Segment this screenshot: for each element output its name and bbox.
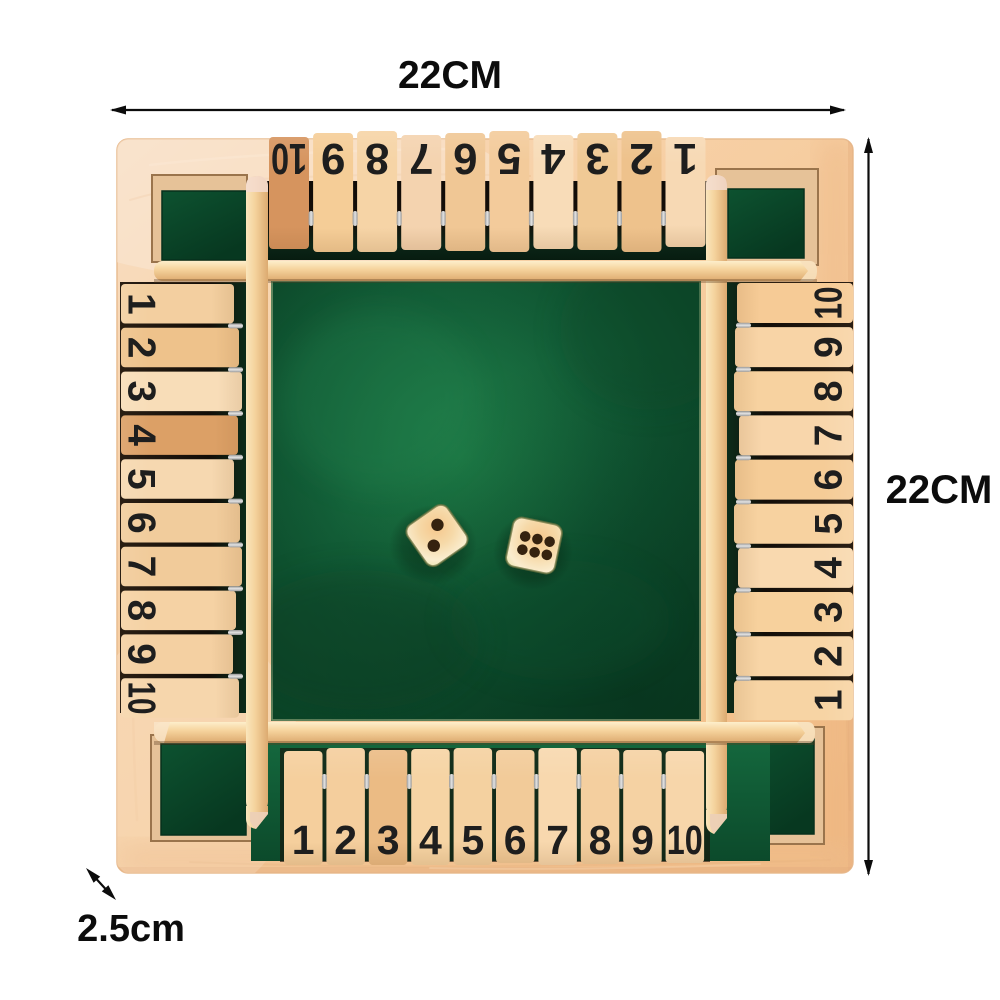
svg-text:9: 9	[631, 817, 654, 863]
svg-text:6: 6	[453, 134, 477, 183]
svg-text:5: 5	[120, 468, 163, 490]
svg-text:2.5cm: 2.5cm	[77, 908, 185, 950]
svg-text:7: 7	[546, 817, 569, 863]
svg-text:8: 8	[365, 134, 389, 183]
svg-text:6: 6	[808, 469, 851, 491]
svg-text:9: 9	[808, 336, 851, 358]
svg-text:5: 5	[807, 513, 850, 535]
svg-text:3: 3	[585, 134, 609, 183]
svg-text:1: 1	[292, 817, 315, 863]
svg-text:2: 2	[120, 337, 163, 359]
svg-text:4: 4	[419, 817, 442, 863]
svg-text:10: 10	[271, 134, 307, 183]
svg-text:3: 3	[377, 817, 400, 863]
svg-text:4: 4	[541, 134, 566, 183]
svg-text:10: 10	[667, 817, 703, 863]
svg-text:3: 3	[808, 601, 851, 623]
svg-text:4: 4	[808, 557, 851, 579]
svg-text:1: 1	[673, 134, 697, 183]
svg-text:6: 6	[120, 512, 163, 534]
svg-text:8: 8	[589, 817, 612, 863]
svg-text:10: 10	[808, 287, 851, 320]
svg-text:1: 1	[808, 689, 851, 711]
svg-text:10: 10	[120, 682, 163, 715]
svg-text:6: 6	[504, 817, 527, 863]
svg-text:7: 7	[409, 134, 433, 183]
svg-text:22CM: 22CM	[398, 54, 502, 97]
svg-text:9: 9	[321, 134, 345, 183]
svg-text:1: 1	[120, 293, 163, 315]
svg-text:8: 8	[120, 599, 163, 621]
svg-text:5: 5	[497, 134, 521, 183]
svg-text:2: 2	[808, 645, 851, 667]
svg-text:22CM: 22CM	[886, 468, 993, 512]
svg-text:4: 4	[120, 424, 163, 446]
svg-text:3: 3	[120, 381, 163, 403]
svg-text:8: 8	[808, 380, 851, 402]
svg-text:5: 5	[461, 817, 484, 863]
svg-text:7: 7	[808, 425, 851, 447]
svg-text:2: 2	[334, 817, 357, 863]
svg-text:9: 9	[120, 643, 163, 665]
svg-text:7: 7	[120, 556, 163, 578]
svg-text:2: 2	[629, 134, 653, 183]
